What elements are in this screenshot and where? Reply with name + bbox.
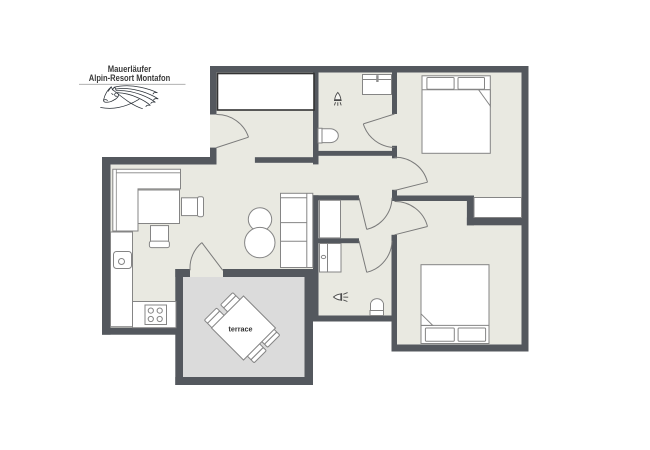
svg-text:terrace: terrace xyxy=(229,325,253,334)
svg-text:Alpin-Resort Montafon: Alpin-Resort Montafon xyxy=(89,72,171,83)
